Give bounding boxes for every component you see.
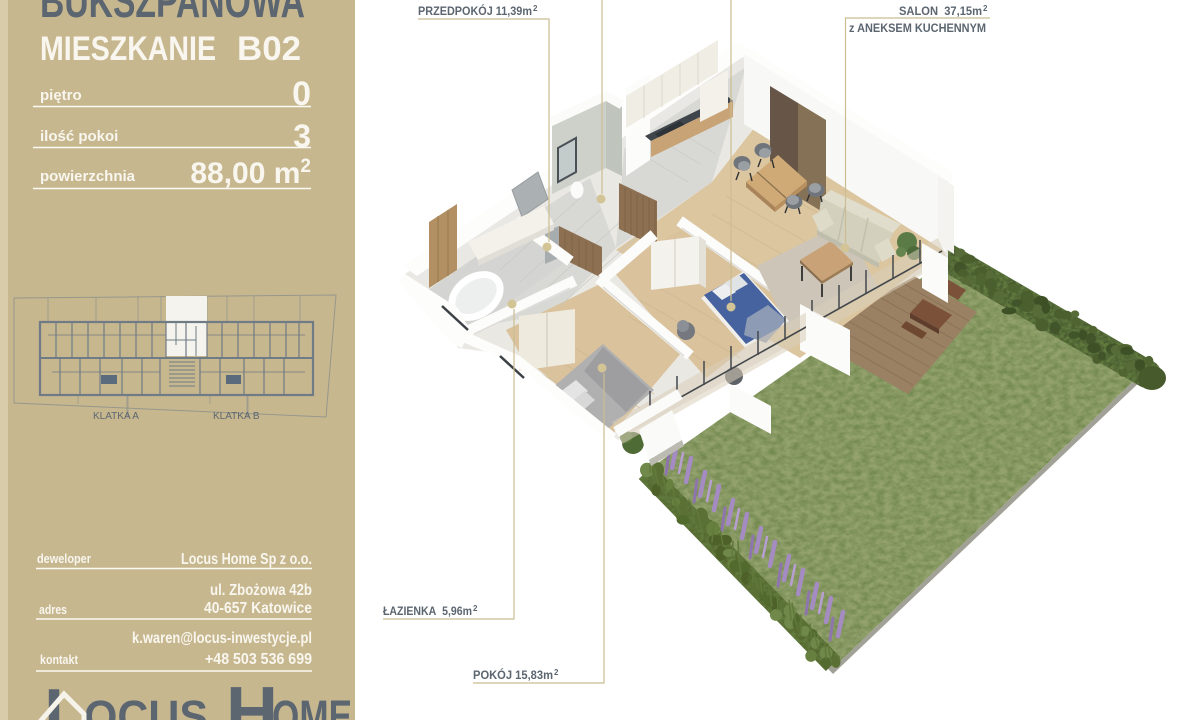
svg-text:0: 0 <box>292 75 311 113</box>
svg-text:B02: B02 <box>237 30 301 68</box>
svg-text:OME: OME <box>272 691 352 720</box>
svg-text:OCUS: OCUS <box>84 691 208 720</box>
svg-text:H: H <box>226 673 278 720</box>
svg-text:KLATKA A: KLATKA A <box>93 411 139 422</box>
svg-text:powierzchnia: powierzchnia <box>40 168 136 185</box>
svg-text:Locus Home Sp z o.o.: Locus Home Sp z o.o. <box>181 551 312 568</box>
svg-text:3: 3 <box>293 118 311 154</box>
svg-text:SALON 37,15m: SALON 37,15m <box>899 4 982 18</box>
svg-text:KLATKA B: KLATKA B <box>213 411 260 422</box>
svg-text:adres: adres <box>39 602 67 617</box>
svg-text:PRZEDPOKÓJ 11,39m: PRZEDPOKÓJ 11,39m <box>418 3 532 18</box>
svg-text:k.waren@locus-inwestycje.pl: k.waren@locus-inwestycje.pl <box>132 630 312 647</box>
svg-text:MIESZKANIE: MIESZKANIE <box>40 30 216 68</box>
svg-text:2: 2 <box>983 4 988 13</box>
svg-text:BUKSZPANOWA: BUKSZPANOWA <box>40 0 305 27</box>
svg-text:ul. Zbożowa 42b: ul. Zbożowa 42b <box>210 582 312 599</box>
svg-text:z ANEKSEM KUCHENNYM: z ANEKSEM KUCHENNYM <box>849 21 986 35</box>
svg-text:kontakt: kontakt <box>40 652 79 667</box>
svg-text:POKÓJ 15,83m: POKÓJ 15,83m <box>473 667 553 682</box>
svg-text:ilość pokoi: ilość pokoi <box>40 128 118 145</box>
svg-text:ŁAZIENKA 5,96m: ŁAZIENKA 5,96m <box>383 604 472 618</box>
svg-text:2: 2 <box>533 4 538 13</box>
svg-text:40-657 Katowice: 40-657 Katowice <box>204 600 312 617</box>
svg-text:2: 2 <box>473 604 478 613</box>
svg-text:deweloper: deweloper <box>37 551 91 566</box>
svg-text:88,00 m2: 88,00 m2 <box>190 156 311 190</box>
svg-text:piętro: piętro <box>40 87 82 104</box>
svg-text:+48 503 536 699: +48 503 536 699 <box>205 651 312 668</box>
svg-text:2: 2 <box>554 668 559 677</box>
